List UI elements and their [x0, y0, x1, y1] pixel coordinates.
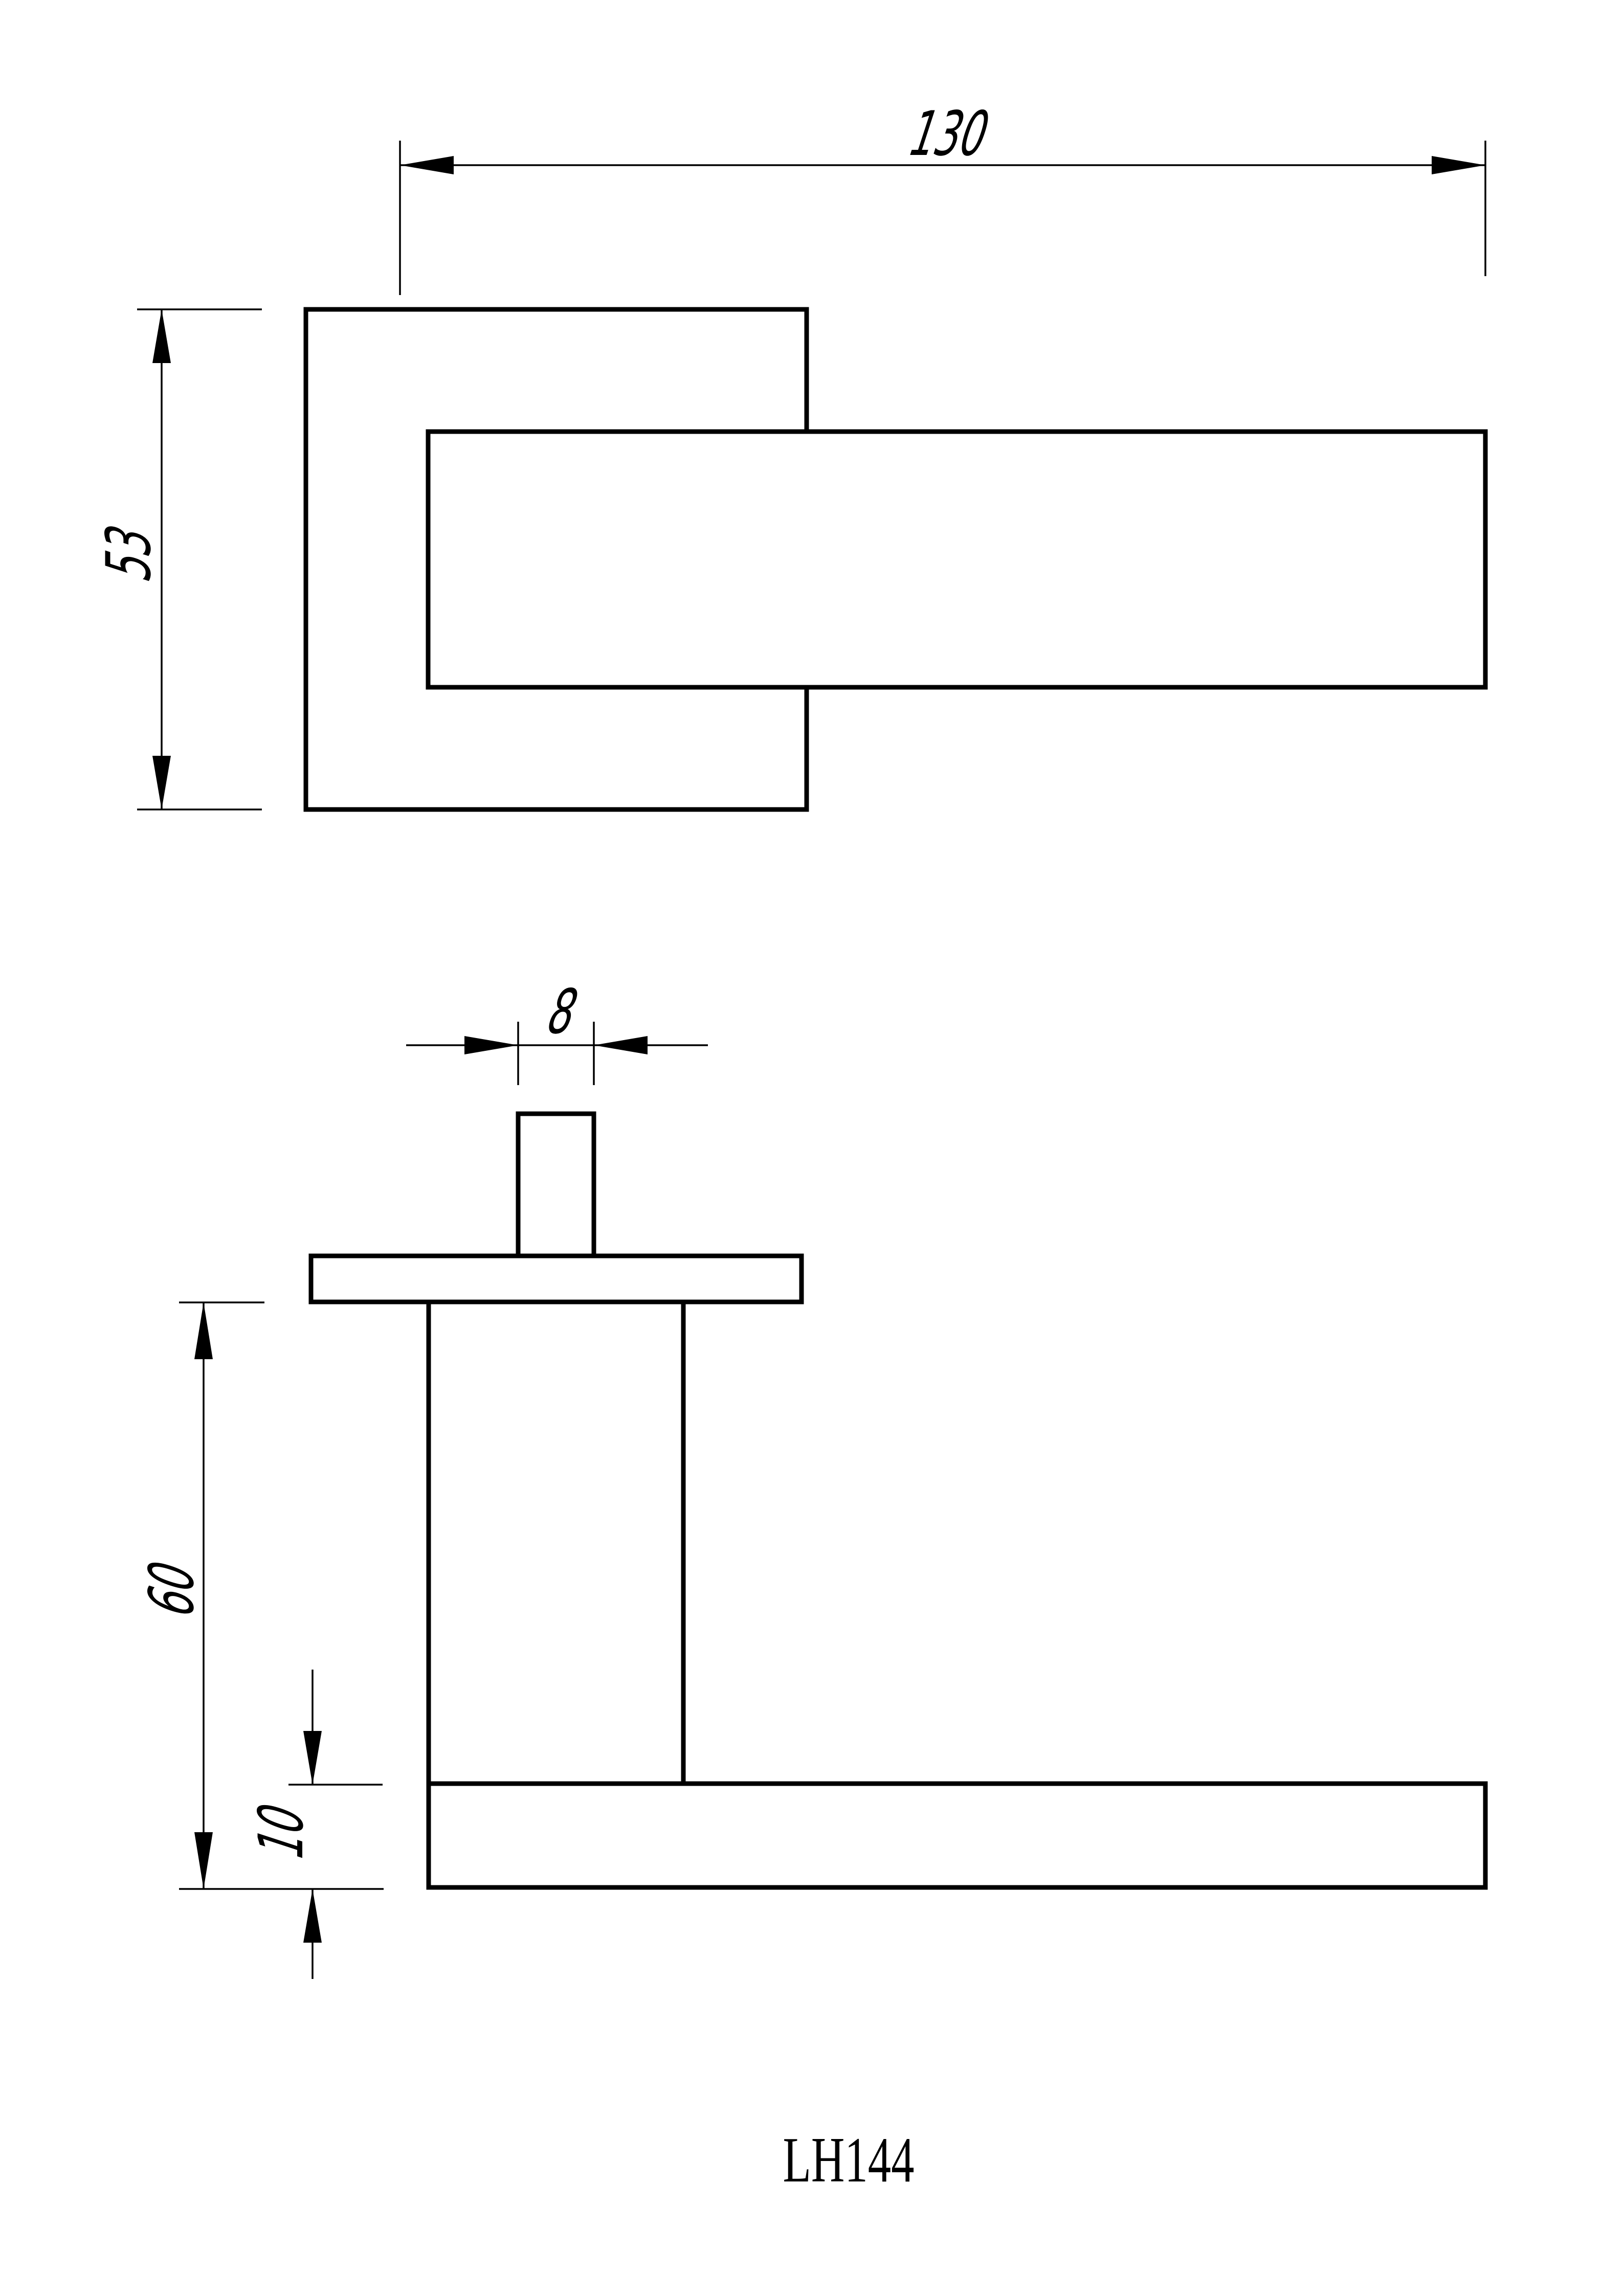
front-view [306, 309, 1485, 809]
dim-rose-size: 53 [93, 309, 262, 809]
dim-length-arrowhead-right [1432, 156, 1485, 174]
product-code: LH144 [783, 2124, 915, 2196]
dim-spindle-label: 8 [539, 976, 587, 1048]
lever-side-outline [429, 1784, 1485, 1887]
dim-thickness-arrowhead-bottom [303, 1889, 322, 1943]
dim-spindle-arrowhead-left [464, 1036, 518, 1054]
dim-rose-arrowhead-bottom [152, 756, 171, 809]
dim-lever-length: 130 [400, 98, 1485, 295]
side-view [311, 1114, 1485, 1887]
spindle-outline [518, 1114, 594, 1256]
dim-length-arrowhead-left [400, 156, 454, 174]
dim-height-label: 60 [136, 1552, 208, 1625]
technical-drawing: 130 53 8 60 10 [0, 0, 1624, 2296]
dim-rose-label: 53 [93, 516, 165, 589]
dim-spindle-arrowhead-right [594, 1036, 648, 1054]
dim-spindle-width: 8 [406, 976, 708, 1085]
dim-thickness-label: 10 [246, 1794, 317, 1867]
dim-lever-thickness: 10 [246, 1670, 383, 1979]
dim-height-arrowhead-top [194, 1302, 213, 1359]
dim-length-label: 130 [900, 98, 998, 170]
dim-height-arrowhead-bottom [194, 1832, 213, 1889]
lever-front-outline [428, 432, 1485, 687]
rose-plate-outline [311, 1256, 802, 1302]
neck-outline [429, 1302, 683, 1784]
dim-thickness-arrowhead-top [303, 1731, 322, 1785]
dim-rose-arrowhead-top [152, 309, 171, 363]
